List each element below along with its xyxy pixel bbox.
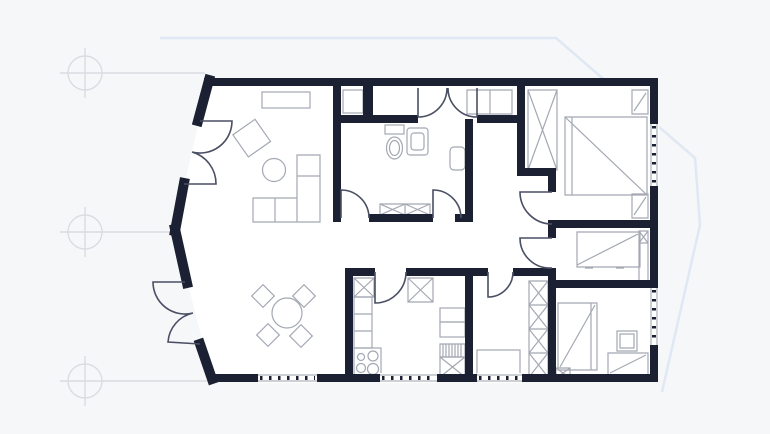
wall-niche-bottom bbox=[477, 115, 518, 123]
floor-plan-canvas bbox=[0, 0, 770, 434]
floor-area bbox=[174, 82, 654, 378]
floor bbox=[174, 82, 654, 378]
floor-plan-svg bbox=[0, 0, 770, 434]
window-kitchen bbox=[380, 373, 437, 383]
window-lower-bedroom bbox=[649, 288, 659, 345]
wall-bedroom-left bbox=[517, 78, 525, 174]
wall-niche-bottom bbox=[337, 115, 418, 123]
wall-bath-bottom bbox=[369, 214, 433, 222]
window-living bbox=[258, 373, 317, 383]
wall-bedroom-stub bbox=[517, 168, 553, 176]
wall-bath-right bbox=[465, 119, 473, 222]
wall-bedroom-divider bbox=[548, 220, 658, 228]
window-bedroom bbox=[649, 124, 659, 186]
wall-living-bath bbox=[333, 78, 341, 222]
wall-kitchen-left bbox=[345, 268, 353, 380]
wall-hall-top bbox=[406, 268, 488, 276]
window-hall bbox=[477, 373, 522, 383]
wall-corridor bbox=[548, 168, 556, 192]
wall-hall-top bbox=[513, 268, 552, 276]
wall-room-divider bbox=[548, 280, 658, 288]
wall-kitchen-right bbox=[465, 268, 473, 380]
wall-bath-bottom bbox=[333, 214, 341, 222]
wall-top bbox=[204, 78, 658, 86]
wall-closet bbox=[363, 86, 373, 119]
